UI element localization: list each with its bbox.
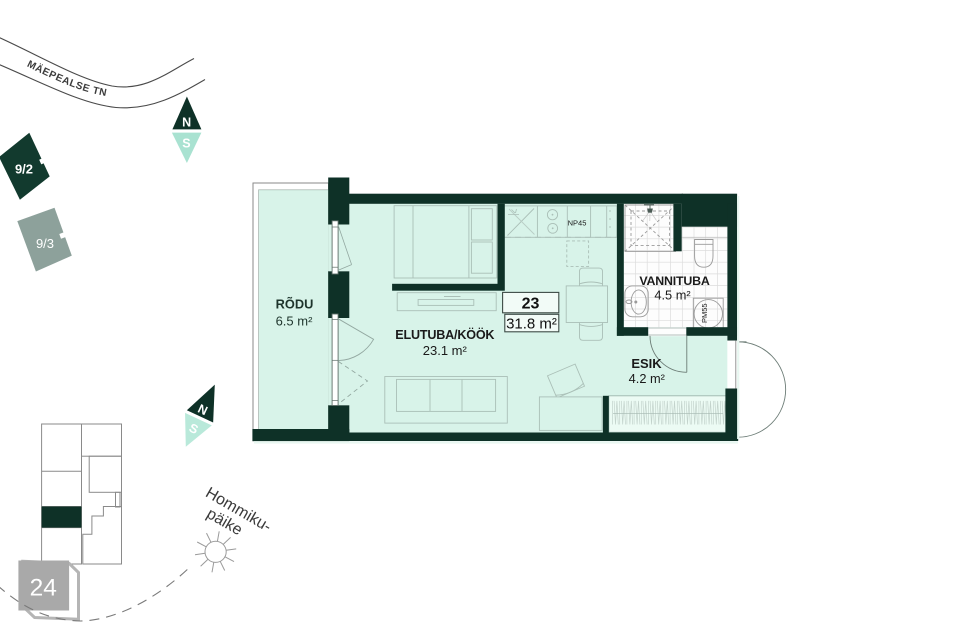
svg-text:9/2: 9/2 [15, 162, 33, 177]
svg-text:N: N [182, 116, 191, 130]
svg-text:ESIK: ESIK [631, 356, 662, 371]
svg-text:MÄEPEALSE TN: MÄEPEALSE TN [25, 59, 108, 99]
svg-text:NP45: NP45 [568, 219, 587, 228]
svg-text:VANNITUBA: VANNITUBA [639, 274, 709, 288]
svg-text:31.8 m²: 31.8 m² [506, 315, 557, 332]
svg-text:23.1 m²: 23.1 m² [423, 343, 468, 358]
svg-text:4.5 m²: 4.5 m² [654, 288, 691, 303]
svg-text:24: 24 [30, 575, 57, 602]
svg-text:6.5 m²: 6.5 m² [276, 314, 314, 329]
svg-text:PM55: PM55 [700, 303, 709, 323]
svg-text:RÕDU: RÕDU [276, 297, 314, 312]
svg-text:4.2 m²: 4.2 m² [629, 371, 666, 386]
svg-text:S: S [182, 137, 190, 151]
svg-text:9/3: 9/3 [36, 236, 54, 251]
svg-text:ELUTUBA/KÖÖK: ELUTUBA/KÖÖK [395, 327, 494, 342]
svg-text:23: 23 [522, 296, 540, 313]
